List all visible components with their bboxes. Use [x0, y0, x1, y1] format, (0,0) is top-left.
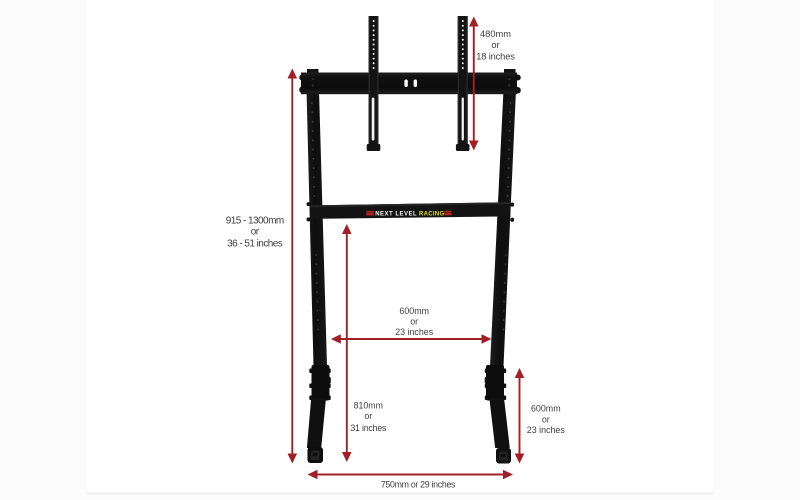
svg-text:31 inches: 31 inches [350, 423, 387, 433]
svg-text:18 inches: 18 inches [476, 51, 515, 61]
svg-text:or: or [542, 414, 550, 424]
svg-text:600mm: 600mm [399, 306, 429, 316]
svg-text:23 inches: 23 inches [395, 327, 434, 337]
svg-text:NEXT LEVEL: NEXT LEVEL [375, 212, 417, 218]
svg-text:915 - 1300mm: 915 - 1300mm [226, 216, 284, 227]
svg-text:480mm: 480mm [480, 29, 511, 39]
svg-text:or: or [364, 411, 372, 421]
svg-text:750mm or 29 inches: 750mm or 29 inches [381, 479, 456, 489]
svg-text:36 - 51 inches: 36 - 51 inches [227, 239, 283, 250]
svg-text:23 inches: 23 inches [527, 425, 566, 435]
svg-text:or: or [251, 226, 260, 237]
svg-text:or: or [410, 317, 418, 327]
svg-text:810mm: 810mm [354, 400, 383, 410]
svg-text:600mm: 600mm [531, 404, 561, 414]
svg-text:or: or [491, 40, 499, 50]
svg-text:RACING: RACING [419, 212, 444, 218]
